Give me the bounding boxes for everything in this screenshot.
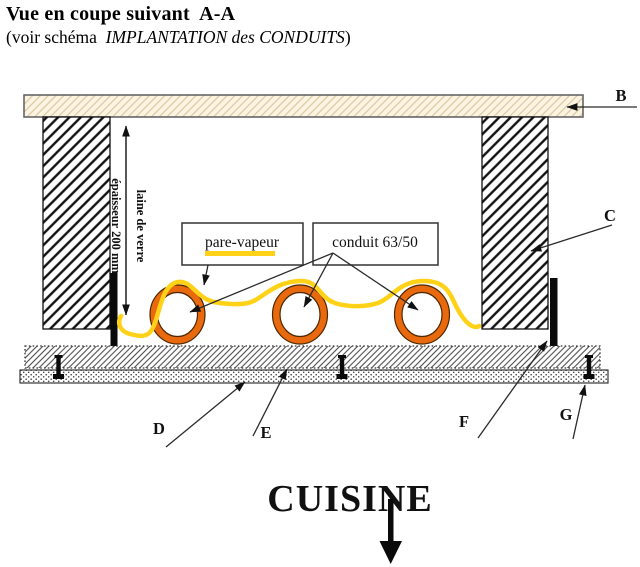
subtitle-schema-name: IMPLANTATION des CONDUITS bbox=[106, 27, 345, 47]
pare-vapeur-label: pare-vapeur bbox=[205, 234, 280, 251]
insulation-label-line2: épaisseur 200 mm bbox=[109, 178, 123, 274]
page-subtitle: (voir schéma IMPLANTATION des CONDUITS) bbox=[6, 27, 351, 48]
label-f: F bbox=[459, 412, 469, 431]
cross-section-diagram: laine de verre épaisseur 200 mm bbox=[0, 0, 640, 567]
pare-vapeur-arrow bbox=[204, 265, 208, 285]
label-g-arrow bbox=[573, 385, 585, 439]
pare-vapeur-underline bbox=[205, 251, 275, 256]
support-column-left bbox=[43, 117, 110, 329]
suspension-bar-left bbox=[111, 273, 118, 357]
label-d-arrow bbox=[166, 382, 245, 447]
label-e: E bbox=[260, 423, 271, 442]
support-column-right bbox=[482, 117, 548, 329]
label-g: G bbox=[560, 405, 573, 424]
room-label: CUISINE bbox=[267, 478, 432, 520]
subtitle-prefix: (voir schéma bbox=[6, 27, 106, 47]
diagram-canvas: laine de verre épaisseur 200 mm bbox=[0, 0, 640, 567]
label-c: C bbox=[604, 206, 616, 225]
label-d: D bbox=[153, 419, 165, 438]
insulation-label-line1: laine de verre bbox=[134, 190, 148, 263]
label-b: B bbox=[615, 86, 626, 105]
top-slab bbox=[24, 95, 583, 117]
conduit-circle-3 bbox=[395, 285, 450, 344]
page-title: Vue en coupe suivant A-A bbox=[6, 3, 235, 26]
ceiling-slab-plaster bbox=[20, 370, 608, 383]
subtitle-suffix: ) bbox=[345, 27, 351, 47]
ceiling-slab-hatched bbox=[25, 346, 600, 368]
conduit-label: conduit 63/50 bbox=[332, 234, 418, 251]
